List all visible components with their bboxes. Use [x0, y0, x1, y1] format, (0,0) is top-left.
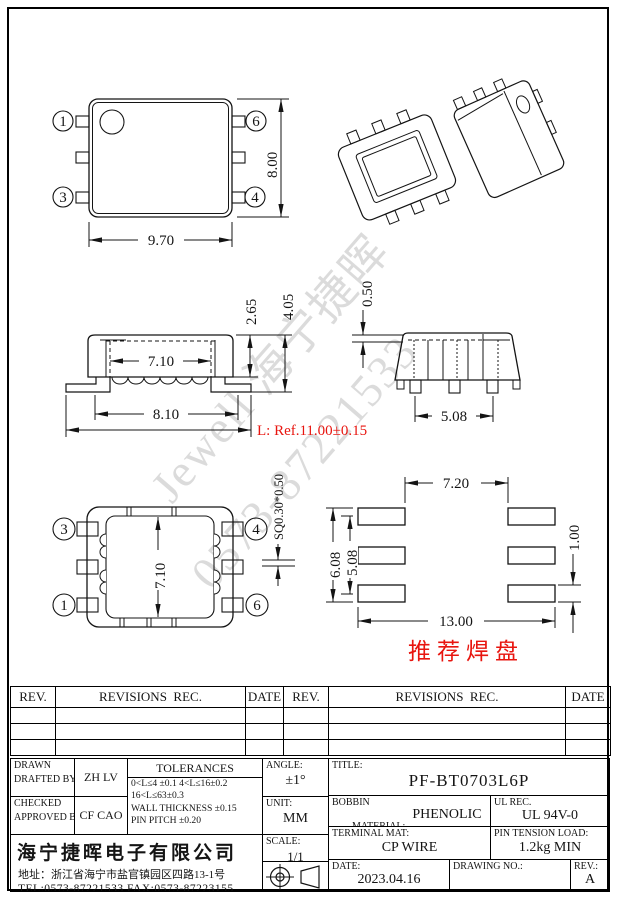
- col-date: DATE: [566, 687, 611, 708]
- col-rev: REV.: [284, 687, 329, 708]
- unit-cell: UNIT: MM: [262, 796, 329, 835]
- col-revisions: REVISIONS REC.: [329, 687, 566, 708]
- drawing-no-cell: DRAWING NO.:: [449, 859, 571, 892]
- company-cell: 海宁捷晖电子有限公司 地址：浙江省海宁市盐官镇园区四路13-1号 TEL:057…: [10, 834, 263, 892]
- approved-by-label: APPROVED BY: [11, 811, 74, 825]
- tolerance-line: WALL THICKNESS ±0.15: [128, 803, 262, 815]
- pin-tension-value: 1.2kg MIN: [491, 840, 609, 856]
- revision-table: REV. REVISIONS REC. DATE REV. REVISIONS …: [10, 686, 611, 756]
- angle-value: ±1°: [263, 773, 328, 789]
- drawn-label: DRAWN: [11, 759, 74, 773]
- tolerance-line: 16<L≤63±0.3: [128, 790, 262, 802]
- drawn-label-cell: DRAWN DRAFTED BY: [10, 758, 75, 797]
- revision-row: [11, 740, 611, 756]
- rev-cell: REV.: A: [570, 859, 610, 892]
- bobbin-label: BOBBIN: [332, 797, 370, 808]
- checked-value-cell: CF CAO: [74, 796, 128, 835]
- terminal-mat-label: TERMINAL MAT:: [329, 827, 490, 841]
- checked-label-cell: CHECKED APPROVED BY: [10, 796, 75, 835]
- tolerances-title: TOLERANCES: [128, 759, 262, 778]
- tolerances-cell: TOLERANCES 0<L≤4 ±0.1 4<L≤16±0.2 16<L≤63…: [127, 758, 263, 835]
- ul-rec-cell: UL REC. UL 94V-0: [490, 795, 610, 827]
- company-name: 海宁捷晖电子有限公司: [11, 835, 262, 865]
- drawn-value-cell: ZH LV: [74, 758, 128, 797]
- bobbin-material-cell: BOBBIN MATERIAL: PHENOLIC: [328, 795, 491, 827]
- scale-label: SCALE:: [263, 835, 328, 849]
- part-number: PF-BT0703L6P: [329, 771, 609, 791]
- checked-label: CHECKED: [11, 797, 74, 811]
- drawn-value: ZH LV: [84, 770, 118, 784]
- pin-tension-label: PIN TENSION LOAD:: [491, 827, 609, 841]
- company-address: 地址：浙江省海宁市盐官镇园区四路13-1号: [11, 865, 262, 882]
- terminal-mat-value: CP WIRE: [329, 840, 490, 856]
- projection-symbol-cell: [262, 861, 329, 892]
- tolerance-line: 0<L≤4 ±0.1 4<L≤16±0.2: [128, 778, 262, 790]
- projection-symbol-icon: [263, 862, 328, 891]
- ul-rec-value: UL 94V-0: [491, 808, 609, 824]
- angle-label: ANGLE:: [263, 759, 328, 773]
- tolerance-line: PIN PITCH ±0.20: [128, 815, 262, 827]
- bobbin-material-value: PHENOLIC: [412, 807, 481, 823]
- drawing-sheet: Jewell 海宁捷晖 0573-87221533 1 3 6 4: [0, 0, 620, 899]
- pin-tension-cell: PIN TENSION LOAD: 1.2kg MIN: [490, 826, 610, 860]
- title-block: DRAWN DRAFTED BY ZH LV CHECKED APPROVED …: [10, 758, 610, 892]
- checked-value: CF CAO: [79, 808, 122, 822]
- unit-label: UNIT:: [263, 797, 328, 811]
- drawing-no-label: DRAWING NO.:: [450, 860, 570, 874]
- date-cell: DATE: 2023.04.16: [328, 859, 450, 892]
- terminal-mat-cell: TERMINAL MAT: CP WIRE: [328, 826, 491, 860]
- title-cell: TITLE: PF-BT0703L6P: [328, 758, 610, 796]
- angle-cell: ANGLE: ±1°: [262, 758, 329, 797]
- company-tel: TEL:0573-87221533 FAX:0573-87223155: [11, 882, 262, 892]
- revision-row: [11, 724, 611, 740]
- revision-row: [11, 708, 611, 724]
- col-date: DATE: [246, 687, 284, 708]
- date-value: 2023.04.16: [329, 872, 449, 888]
- rev-value: A: [571, 872, 609, 888]
- scale-cell: SCALE: 1/1: [262, 834, 329, 862]
- col-rev: REV.: [11, 687, 56, 708]
- drafted-by-label: DRAFTED BY: [11, 773, 74, 787]
- unit-value: MM: [263, 811, 328, 827]
- col-revisions: REVISIONS REC.: [56, 687, 246, 708]
- revision-table-header: REV. REVISIONS REC. DATE REV. REVISIONS …: [11, 687, 611, 708]
